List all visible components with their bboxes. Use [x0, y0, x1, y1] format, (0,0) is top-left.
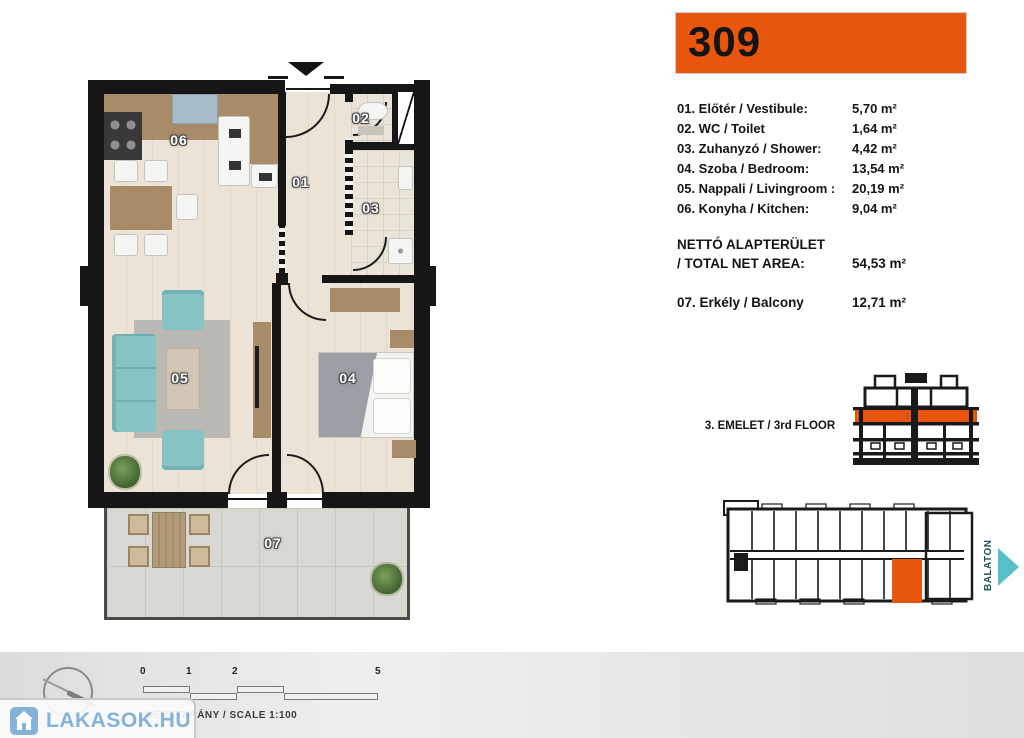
room-label-wc: 02 [345, 110, 377, 126]
watermark-logo: LAKASOK.HU [0, 698, 196, 738]
room-label: 06. Konyha / Kitchen: [677, 201, 809, 216]
wall-bottom-stub [267, 492, 287, 508]
direction-label: BALATON [983, 534, 994, 596]
wall-hall-bath-hatch [345, 138, 353, 235]
scale-tick: 0 [140, 666, 146, 677]
wall-left-pillar [80, 266, 88, 306]
dining-table [110, 186, 172, 230]
building-elevation [853, 368, 979, 470]
balcony-door-right-sill [287, 498, 322, 500]
plant-icon [372, 564, 402, 594]
nightstand [392, 440, 416, 458]
shower-tray [388, 238, 413, 264]
wall-living-bedroom [272, 283, 281, 492]
floor-indicator: 3. EMELET / 3rd FLOOR [700, 420, 840, 432]
balcony-row-label: 07. Erkély / Balcony [677, 295, 804, 310]
scale-tick: 5 [375, 666, 381, 677]
scale-segment [284, 693, 378, 700]
room-list-row: 06. Konyha / Kitchen: 9,04 m² [677, 201, 947, 221]
sofa [112, 334, 156, 432]
wall-bedroom-top-a [278, 275, 288, 283]
room-list-row: 01. Előtér / Vestibule: 5,70 m² [677, 101, 947, 121]
total-area-line1: NETTÓ ALAPTERÜLET [677, 237, 825, 252]
unit-number-box: 309 [675, 12, 967, 74]
room-list-row: 03. Zuhanyzó / Shower: 4,42 m² [677, 141, 947, 161]
room-label-shower: 03 [355, 200, 387, 216]
wall-hall-wc-a [345, 92, 353, 102]
unit-number: 309 [676, 13, 966, 71]
room-label: 01. Előtér / Vestibule: [677, 101, 808, 116]
balcony-chair [128, 514, 149, 535]
tv [255, 346, 259, 408]
floor-plan: 01 02 03 04 05 06 07 [0, 0, 520, 660]
room-label: 04. Szoba / Bedroom: [677, 161, 809, 176]
entry-lintel-right [324, 76, 344, 79]
wall-bottom-b [322, 492, 430, 508]
room-list-row: 02. WC / Toilet 1,64 m² [677, 121, 947, 141]
watermark-text: LAKASOK.HU [46, 709, 191, 733]
room-label-living: 05 [164, 370, 196, 386]
room-label-balcony: 07 [257, 535, 289, 551]
kitchen-counter-column [250, 94, 278, 164]
room-label: 05. Nappali / Livingroom : [677, 181, 835, 196]
scale-tick: 2 [232, 666, 238, 677]
dining-chair [114, 160, 138, 182]
stove [104, 112, 142, 160]
shaft [398, 92, 414, 144]
room-label-kitchen: 06 [163, 132, 195, 148]
room-label-bedroom: 04 [332, 370, 364, 386]
site-key-plan [718, 493, 980, 625]
scale-segment [143, 686, 190, 693]
balcony-row-value: 12,71 m² [852, 295, 906, 310]
microwave-icon [259, 173, 272, 181]
appliance-icon [229, 161, 241, 170]
balcony-table [152, 512, 186, 568]
house-icon [10, 707, 38, 735]
room-area: 4,42 m² [852, 141, 897, 156]
bedroom-desk [330, 288, 400, 312]
room-area: 9,04 m² [852, 201, 897, 216]
armchair [162, 430, 204, 470]
house-roof [15, 711, 33, 719]
room-label-hall: 01 [285, 174, 317, 190]
scale-tick: 1 [186, 666, 192, 677]
dining-chair [144, 160, 168, 182]
room-label: 03. Zuhanyzó / Shower: [677, 141, 821, 156]
wc-mat [358, 126, 384, 135]
washbasin [398, 166, 413, 190]
balcony-chair [189, 514, 210, 535]
balcony-door-left-sill [228, 498, 267, 500]
dining-chair [114, 234, 138, 256]
wall-right-pillar [430, 266, 436, 306]
house-door [22, 723, 26, 730]
balcony-chair [128, 546, 149, 567]
entry-threshold [286, 88, 330, 90]
total-area-value: 54,53 m² [852, 256, 906, 271]
entry-lintel-left [268, 76, 288, 79]
glass-partition [279, 226, 285, 273]
bed-pillow [373, 398, 411, 434]
wall-bedroom-top-b [322, 275, 430, 283]
dining-chair [176, 194, 198, 220]
room-area: 13,54 m² [852, 161, 904, 176]
highlighted-unit [892, 559, 922, 603]
microwave [251, 164, 278, 188]
balcony-chair [189, 546, 210, 567]
wall-kitchen-hall [278, 92, 286, 226]
wall-top-left [88, 80, 285, 94]
armchair [162, 290, 204, 330]
scale-segment [237, 686, 284, 693]
balaton-arrow-icon [998, 548, 1019, 586]
wall-bottom-a [88, 492, 228, 508]
wall-right [414, 80, 430, 508]
room-label: 02. WC / Toilet [677, 121, 765, 136]
nightstand [390, 330, 414, 348]
entry-arrow-icon [288, 62, 324, 76]
total-area-line2: / TOTAL NET AREA: [677, 256, 805, 271]
kitchen-sink [172, 94, 218, 124]
room-area: 1,64 m² [852, 121, 897, 136]
bed [318, 352, 414, 438]
kitchen-appliance-column [218, 116, 250, 186]
floorplan-sheet: 01 02 03 04 05 06 07 309 01. Előtér / Ve… [0, 0, 1024, 738]
room-list-row: 04. Szoba / Bedroom: 13,54 m² [677, 161, 947, 181]
room-area: 5,70 m² [852, 101, 897, 116]
bed-pillow [373, 358, 411, 394]
room-area: 20,19 m² [852, 181, 904, 196]
dining-chair [144, 234, 168, 256]
balcony-floor [104, 508, 410, 620]
scale-segment [190, 693, 237, 700]
room-list-row: 05. Nappali / Livingroom : 20,19 m² [677, 181, 947, 201]
appliance-icon [229, 129, 241, 138]
bed-blanket [319, 353, 377, 437]
plant-icon [110, 456, 140, 488]
wall-left [88, 80, 104, 508]
